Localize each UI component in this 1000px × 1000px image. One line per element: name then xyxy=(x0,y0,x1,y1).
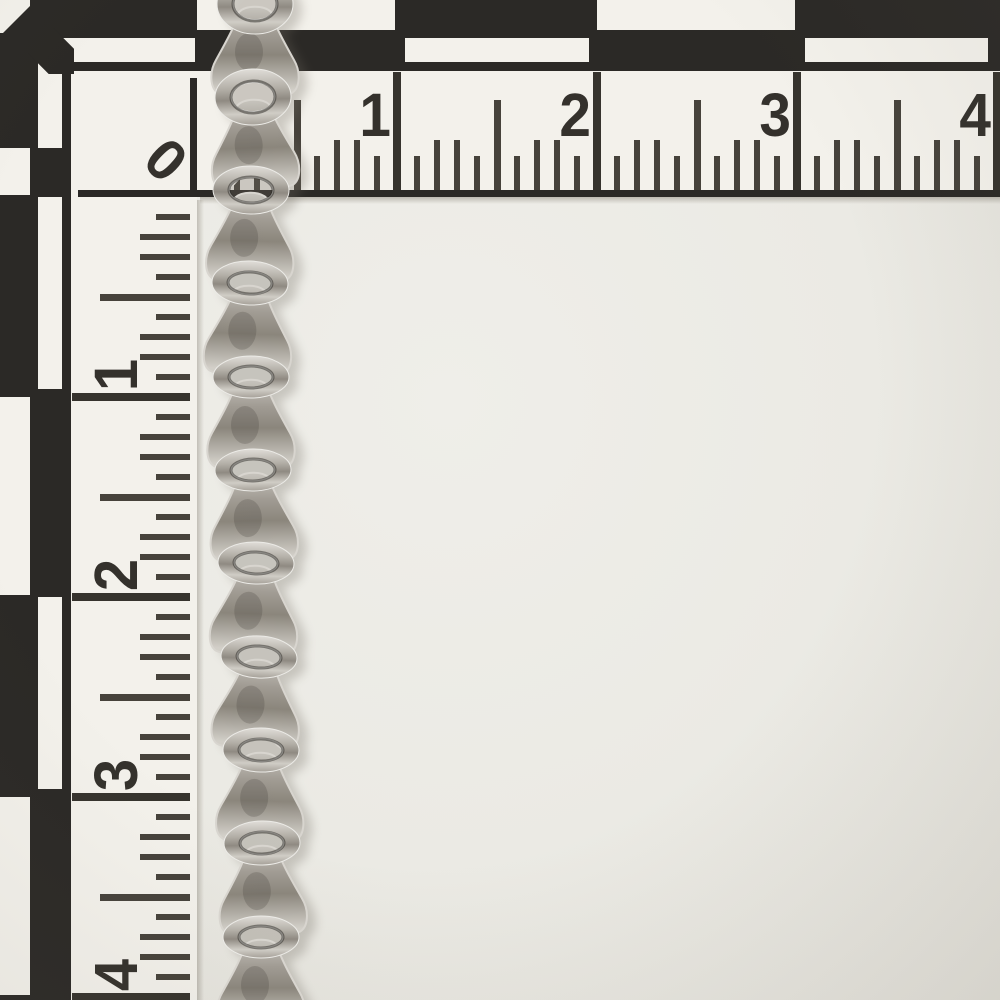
h-cm-label-4: 4 xyxy=(955,92,990,138)
ruler-tick xyxy=(834,140,840,190)
ruler-tick xyxy=(414,156,420,190)
v-cm-label-1: 1 xyxy=(92,348,140,401)
ruler-tick xyxy=(774,156,780,190)
ruler-tick xyxy=(694,100,701,190)
ruler-tick xyxy=(100,694,190,701)
checker-cell xyxy=(797,38,805,63)
ruler-tick xyxy=(100,494,190,501)
checker-cell xyxy=(30,28,38,1000)
ruler-tick xyxy=(814,156,820,190)
ruler-tick xyxy=(100,894,190,901)
ruler-tick xyxy=(734,140,740,190)
ruler-tick xyxy=(393,72,401,190)
ruler-tick xyxy=(674,156,680,190)
v-cm-label-4: 4 xyxy=(92,948,140,1000)
checker-cell xyxy=(38,395,63,597)
ruler-tick xyxy=(894,100,901,190)
h-cm-label-3: 3 xyxy=(755,92,790,138)
photo-stage: 0 1 2 3 4 1 2 3 4 xyxy=(0,0,1000,1000)
checker-cell xyxy=(38,389,63,396)
ruler-tick xyxy=(494,100,501,190)
ruler-tick xyxy=(454,140,460,190)
ruler-tick xyxy=(874,156,880,190)
ruler-tick xyxy=(574,156,580,190)
checker-cell xyxy=(38,789,63,796)
ruler-tick xyxy=(374,156,380,190)
checker-cell xyxy=(0,595,30,797)
checker-cell xyxy=(38,795,63,1000)
checker-cell xyxy=(589,38,597,63)
ruler-tick xyxy=(974,156,980,190)
ruler-tick xyxy=(854,140,860,190)
ruler-tick xyxy=(793,72,801,190)
checker-cell xyxy=(595,38,797,63)
checker-cell xyxy=(795,0,1000,30)
ruler-tick xyxy=(593,72,601,190)
v-cm-label-3: 3 xyxy=(92,748,140,801)
ruler-tick xyxy=(654,140,660,190)
checker-cell xyxy=(0,195,30,397)
ruler-tick xyxy=(434,140,440,190)
h-cm-label-1: 1 xyxy=(355,92,390,138)
checker-cell xyxy=(62,58,71,1000)
checker-cell xyxy=(398,38,405,63)
checker-cell xyxy=(395,0,597,30)
ruler-tick xyxy=(474,156,480,190)
ruler-tick xyxy=(914,156,920,190)
v-cm-label-2: 2 xyxy=(92,548,140,601)
ruler-tick xyxy=(993,72,1000,190)
ruler-tick xyxy=(100,294,190,301)
chain-photo xyxy=(180,0,350,1000)
checker-cell xyxy=(28,30,1000,38)
checker-cell xyxy=(988,38,1000,63)
ruler-tick xyxy=(634,140,640,190)
checker-cell xyxy=(30,0,197,30)
ruler-tick xyxy=(714,156,720,190)
ruler-tick xyxy=(534,140,540,190)
checker-cell xyxy=(0,995,30,1000)
ruler-tick xyxy=(514,156,520,190)
ruler-tick xyxy=(934,140,940,190)
ruler-tick xyxy=(614,156,620,190)
checker-cell xyxy=(0,33,30,148)
h-cm-label-2: 2 xyxy=(555,92,590,138)
checker-cell xyxy=(38,148,63,197)
